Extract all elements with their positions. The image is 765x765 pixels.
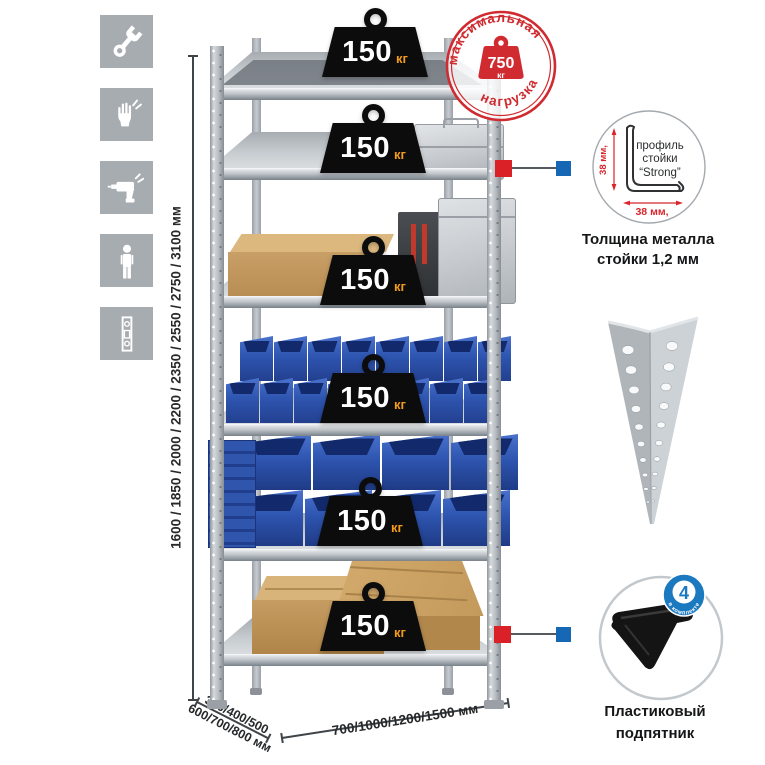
callout-marker-red-bottom — [494, 626, 511, 643]
rack-foot-rear-left — [250, 688, 262, 695]
corner-post-image — [598, 306, 708, 532]
callout-marker-blue-bottom — [556, 627, 571, 642]
shelf-load-badge-4: 150кг — [320, 354, 426, 423]
rack-foot-right — [484, 700, 504, 709]
shelf-load-badge-1: 150кг — [322, 8, 428, 77]
shelf-load-badge-3: 150кг — [320, 236, 426, 305]
callout-marker-blue-top — [556, 161, 571, 176]
svg-text:“Strong”: “Strong” — [639, 167, 681, 179]
profile-label: профиль стойки “Strong” — [636, 140, 684, 179]
shelf-edge-4 — [210, 424, 500, 436]
storage-bin — [444, 336, 477, 381]
rack-post-icon — [100, 307, 153, 360]
rack-foot-rear-right — [442, 688, 454, 695]
shelf-edge-6 — [210, 654, 500, 666]
max-load-stamp: максимальная нагрузка 750 кг — [440, 5, 562, 127]
svg-text:кг: кг — [497, 70, 505, 80]
shelf-edge-5 — [210, 549, 500, 561]
height-dimension-label: 1600 / 1850 / 2000 / 2200 / 2350 / 2550 … — [169, 98, 184, 658]
plastic-foot-caption: Пластиковый подпятник — [575, 701, 735, 745]
shelf-load-badge-2: 150кг — [320, 104, 426, 173]
rack-front-post-left — [210, 46, 224, 702]
rack-foot-left — [207, 700, 227, 709]
included-badge: 4 в комплекте — [663, 574, 705, 616]
storage-bin — [451, 434, 518, 490]
width-dimension-label: 700/1000/1200/1500 мм — [302, 696, 508, 742]
svg-text:4: 4 — [679, 583, 689, 603]
storage-bin — [226, 378, 259, 423]
large-aluminum-case — [438, 198, 516, 304]
shelf-load-badge-6: 150кг — [320, 582, 426, 651]
storage-bin — [274, 336, 307, 381]
storage-bin — [430, 378, 463, 423]
storage-bin — [240, 336, 273, 381]
product-infographic: 1600 / 1850 / 2000 / 2200 / 2350 / 2550 … — [0, 0, 765, 765]
shelf-load-badge-5: 150кг — [317, 477, 423, 546]
svg-text:38 мм,: 38 мм, — [635, 206, 668, 218]
rack-front-post-right — [487, 46, 501, 702]
svg-text:профиль: профиль — [636, 140, 684, 152]
metal-thickness-caption: Толщина металла стойки 1,2 мм — [568, 230, 728, 270]
wrench-icon — [100, 15, 153, 68]
drill-icon — [100, 161, 153, 214]
gloves-icon — [100, 88, 153, 141]
callout-line-top — [511, 167, 557, 169]
callout-line-bottom — [511, 633, 557, 635]
plastic-foot-detail: 4 в комплекте — [595, 570, 730, 705]
depth-dimension-label: 300/400/500 600/700/800 мм — [161, 675, 305, 765]
svg-text:стойки: стойки — [642, 153, 677, 165]
person-icon — [100, 234, 153, 287]
callout-marker-red-top — [495, 160, 512, 177]
storage-bin — [260, 378, 293, 423]
post-profile-detail: 38 мм, 38 мм, профиль стойки “Strong” — [590, 108, 708, 226]
svg-text:38 мм,: 38 мм, — [598, 145, 609, 175]
height-dimension-line — [192, 55, 194, 701]
